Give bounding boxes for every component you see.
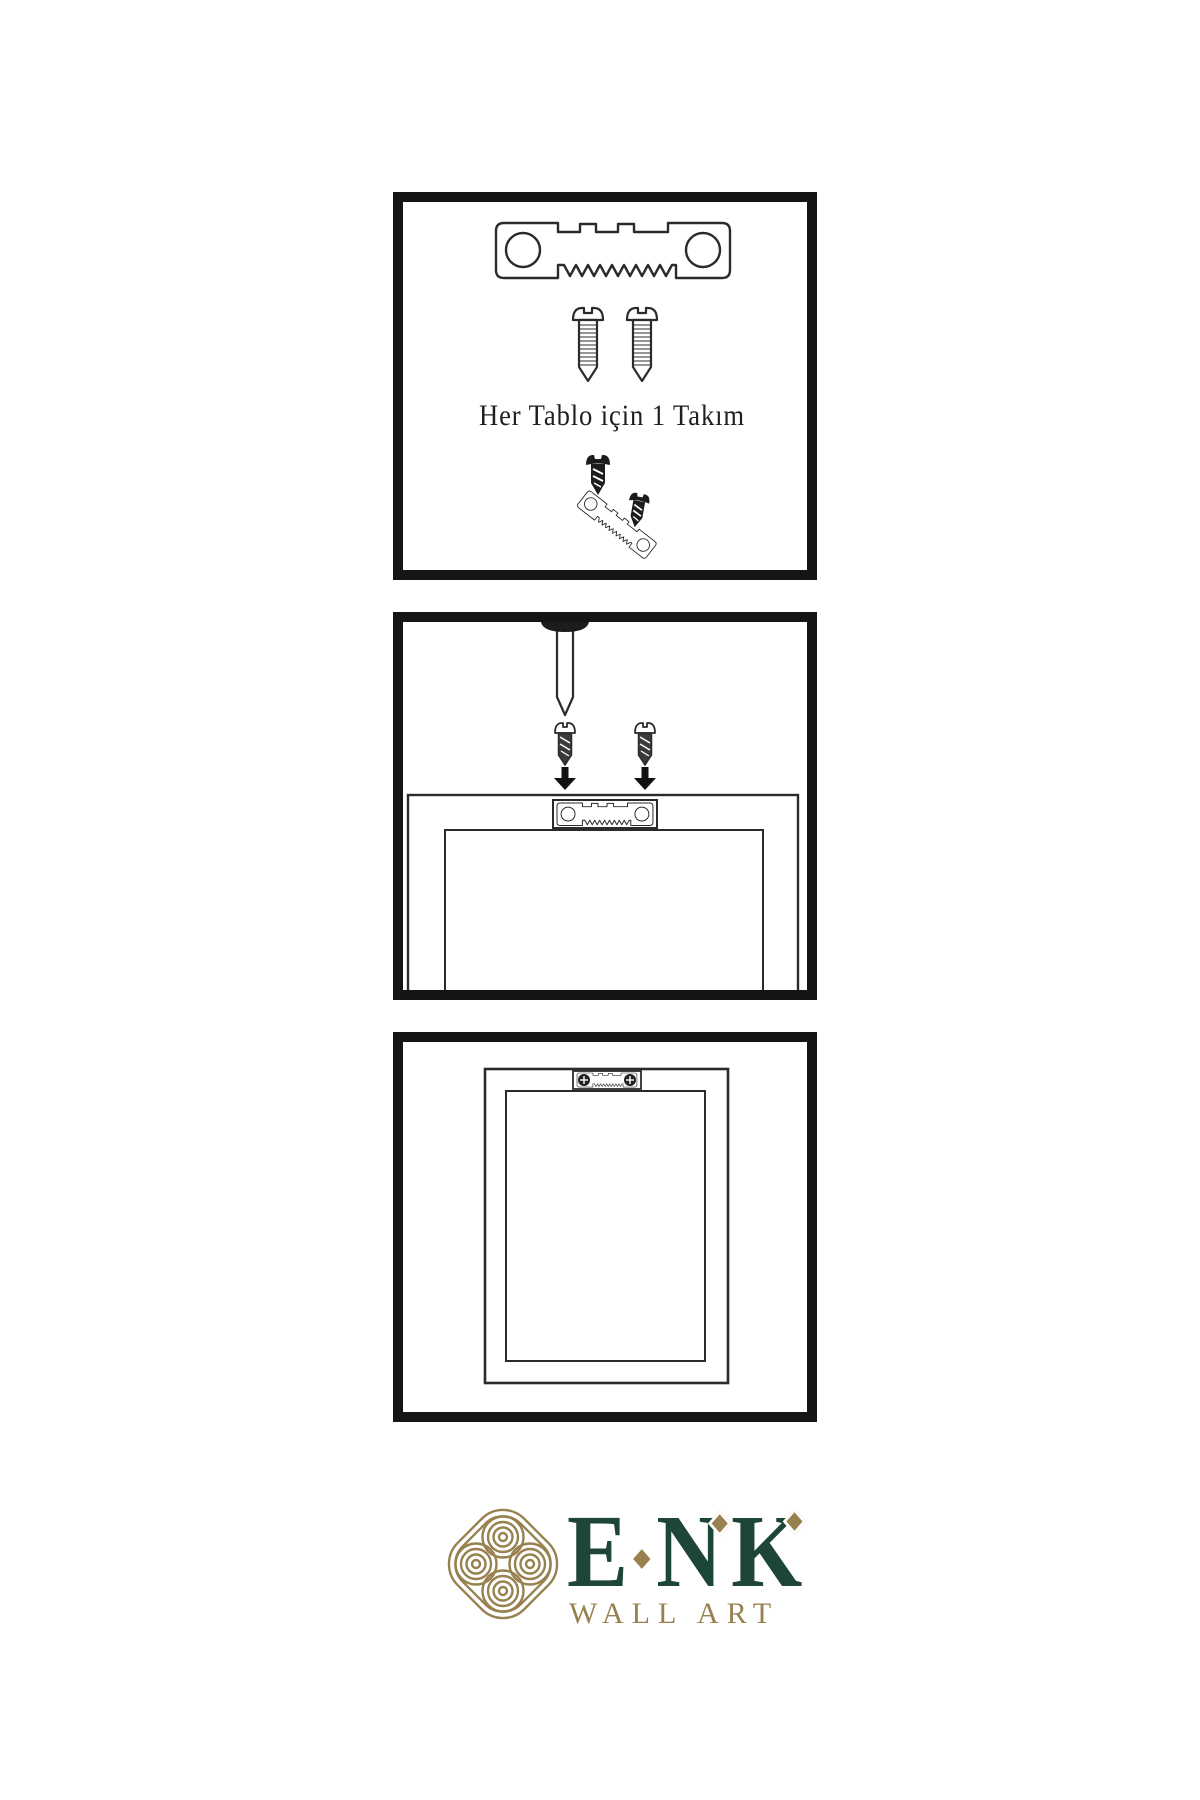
screw-icon <box>635 723 655 765</box>
frame-inner <box>506 1091 705 1361</box>
assembly-mini-group <box>576 455 657 559</box>
kit-caption: Her Tablo için 1 Takım <box>479 399 745 432</box>
nail-shaft-icon <box>557 625 573 715</box>
hanging-instruction-sheet: Her Tablo için 1 Takım <box>0 0 1200 1800</box>
dark-screw-icon <box>586 455 610 495</box>
brand-subtitle: WALL ART <box>569 1597 779 1631</box>
brand-wordmark: E N K <box>567 1500 802 1604</box>
diamond-accent-icon <box>783 1508 807 1535</box>
arrow-down-icon <box>554 767 576 790</box>
panel-hardware-kit: Her Tablo için 1 Takım <box>393 192 817 580</box>
diamond-accent-icon <box>633 1549 650 1569</box>
brand-letter: N <box>656 1494 722 1609</box>
screw-head-icon <box>578 1074 590 1086</box>
nail-head-icon <box>541 622 589 632</box>
panel-installation <box>393 612 817 1000</box>
brand-letter: K <box>731 1494 802 1609</box>
sawtooth-hanger-icon <box>496 223 730 278</box>
screw-icon <box>555 723 575 765</box>
diamond-accent-icon <box>708 1510 732 1537</box>
knot-logo-icon <box>435 1500 571 1628</box>
screw-icon <box>627 308 657 381</box>
screw-icon <box>573 308 603 381</box>
dark-screw-icon <box>625 492 651 529</box>
hanger-plate-installed <box>573 1071 641 1089</box>
brand-letter: E <box>567 1500 628 1604</box>
panel-finished-frame <box>393 1032 817 1422</box>
arrow-down-icon <box>634 767 656 790</box>
screw-head-icon <box>624 1074 636 1086</box>
hanger-plate <box>553 800 657 828</box>
frame-back-inner <box>445 830 763 990</box>
